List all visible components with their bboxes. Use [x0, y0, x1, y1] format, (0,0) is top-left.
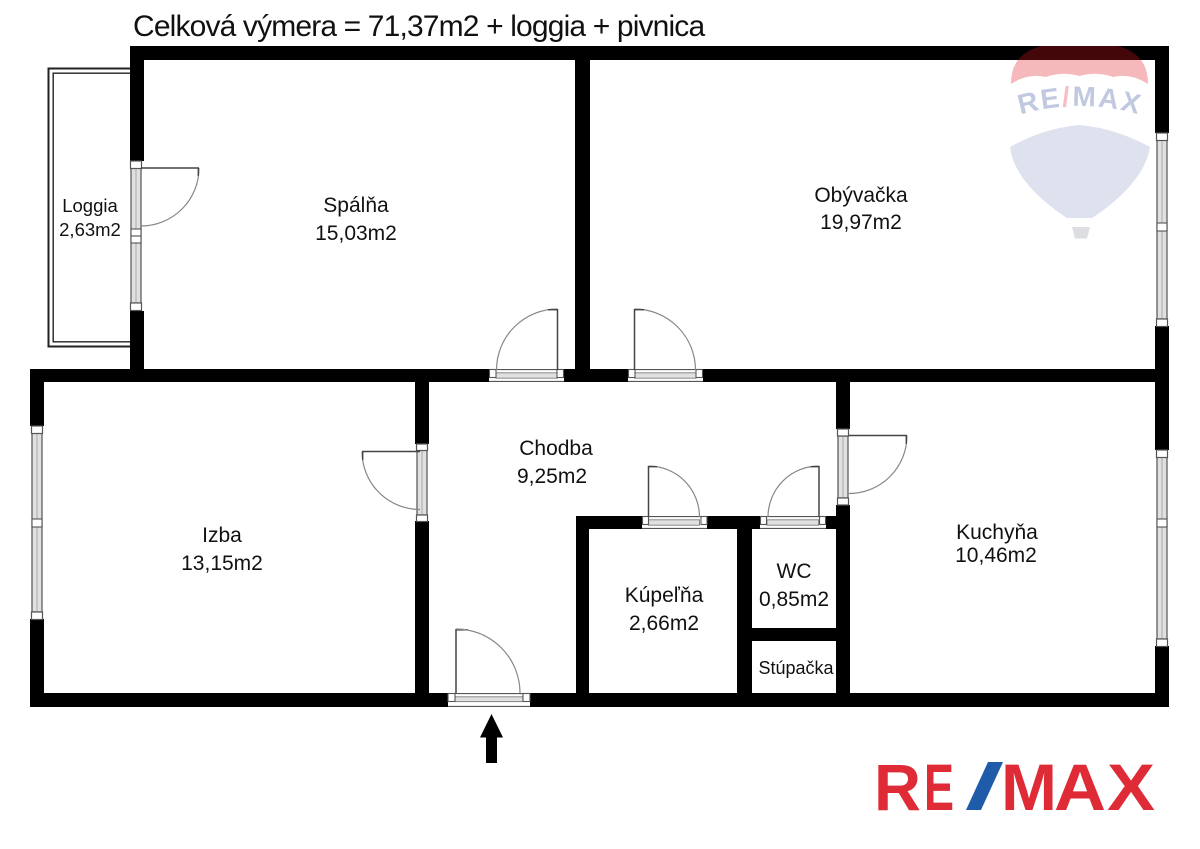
svg-text:Kuchyňa: Kuchyňa — [956, 521, 1038, 544]
svg-text:WC: WC — [777, 560, 812, 583]
svg-text:Spálňa: Spálňa — [323, 194, 389, 217]
svg-text:Stúpačka: Stúpačka — [758, 658, 834, 678]
svg-text:Obývačka: Obývačka — [814, 184, 908, 207]
svg-text:9,25m2: 9,25m2 — [517, 465, 587, 488]
svg-text:E: E — [924, 750, 954, 824]
svg-text:Izba: Izba — [202, 524, 242, 547]
svg-text:R: R — [874, 750, 921, 824]
svg-text:Chodba: Chodba — [519, 437, 593, 460]
svg-text:Celková výmera = 71,37m2 + log: Celková výmera = 71,37m2 + loggia + pivn… — [133, 10, 705, 43]
svg-text:A: A — [1054, 750, 1106, 824]
svg-text:10,46m2: 10,46m2 — [955, 544, 1037, 567]
svg-text:2,66m2: 2,66m2 — [629, 612, 699, 635]
svg-text:0,85m2: 0,85m2 — [759, 588, 829, 611]
svg-text:X: X — [1107, 750, 1155, 824]
svg-text:Loggia: Loggia — [62, 195, 118, 216]
svg-text:15,03m2: 15,03m2 — [315, 222, 397, 245]
svg-text:2,63m2: 2,63m2 — [59, 219, 121, 240]
svg-text:Kúpeľňa: Kúpeľňa — [625, 584, 704, 607]
svg-text:19,97m2: 19,97m2 — [820, 211, 902, 234]
svg-text:M: M — [1001, 750, 1057, 824]
svg-text:13,15m2: 13,15m2 — [181, 552, 263, 575]
